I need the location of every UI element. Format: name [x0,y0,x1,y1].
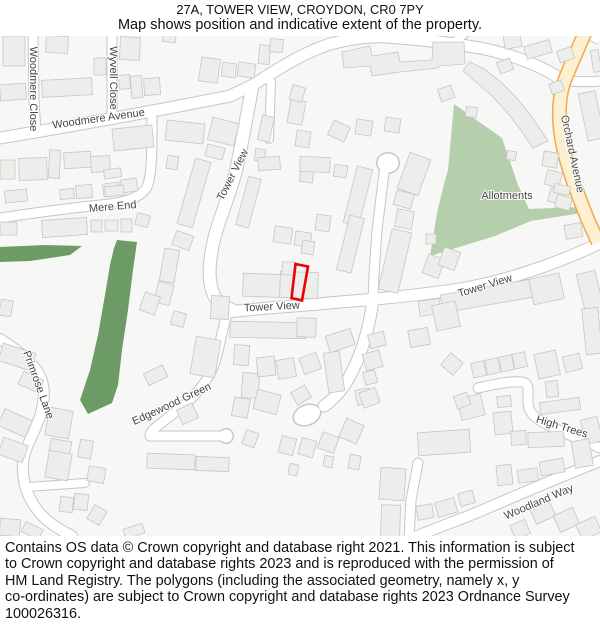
svg-text:Wyvell Close: Wyvell Close [107,46,119,109]
svg-text:Woodmere Close: Woodmere Close [27,47,39,132]
svg-text:Allotments: Allotments [481,190,533,202]
